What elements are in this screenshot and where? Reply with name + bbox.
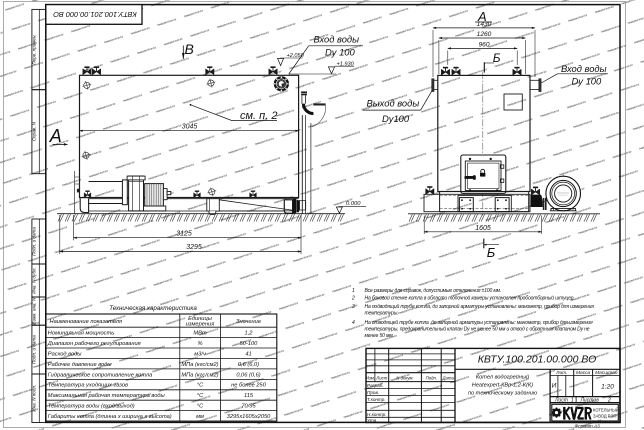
svg-text:На подводящий трубе котла, д: На подводящий трубе котла, до запорной а… [365, 303, 595, 310]
svg-text:Подп. и дата: Подп. и дата [32, 335, 37, 364]
svg-text:Подп. и дата: Подп. и дата [32, 227, 37, 256]
svg-text:50-100: 50-100 [240, 341, 259, 347]
svg-text:м3/ч: м3/ч [194, 351, 206, 357]
svg-text:+1.930: +1.930 [337, 61, 355, 67]
svg-text:Dy100: Dy100 [382, 113, 410, 124]
svg-text:Наименование показателя: Наименование показателя [50, 319, 123, 325]
svg-text:Значение: Значение [236, 319, 261, 325]
svg-text:Инв. N дубл.: Инв. N дубл. [32, 267, 37, 294]
svg-text:Взам. инв. N: Взам. инв. N [32, 297, 37, 324]
svg-text:1,2: 1,2 [245, 331, 254, 337]
svg-text:Перв. примен.: Перв. примен. [32, 34, 37, 65]
svg-text:ЗАВОД РЭП: ЗАВОД РЭП [593, 414, 616, 419]
svg-text:см. п. 2: см. п. 2 [240, 110, 277, 122]
svg-text:1: 1 [352, 288, 355, 294]
svg-text:Dy 100: Dy 100 [572, 76, 602, 87]
svg-text:температуры.: температуры. [365, 310, 399, 316]
svg-text:Б: Б [487, 245, 496, 260]
svg-text:Пров.: Пров. [367, 390, 379, 395]
svg-text:Рабочее давление воды: Рабочее давление воды [48, 362, 113, 368]
svg-text:3295х1605х2050: 3295х1605х2050 [227, 414, 271, 420]
svg-text:И: И [552, 383, 557, 390]
svg-text:Утв.: Утв. [367, 418, 377, 423]
svg-text:Масштаб: Масштаб [595, 370, 618, 376]
svg-text:0,06 (0,6): 0,06 (0,6) [236, 372, 260, 378]
svg-text:мм: мм [196, 414, 204, 420]
svg-text:Справ. N: Справ. N [32, 121, 37, 141]
svg-text:1430: 1430 [477, 21, 492, 28]
svg-text:Лист: Лист [375, 376, 387, 381]
svg-text:Изм.: Изм. [366, 376, 375, 381]
svg-text:по техническому заданию: по техническому заданию [468, 390, 538, 396]
svg-text:0,6 (6,0): 0,6 (6,0) [238, 362, 259, 368]
svg-text:КВТУ.100.201.00.000 ВО: КВТУ.100.201.00.000 ВО [53, 10, 137, 19]
svg-text:41: 41 [245, 351, 251, 357]
svg-text:4: 4 [352, 320, 355, 326]
svg-text:Лист: Лист [554, 398, 568, 404]
svg-text:960: 960 [478, 42, 489, 49]
svg-text:КОТЕЛЬНЫЙ: КОТЕЛЬНЫЙ [593, 407, 619, 412]
svg-text:Габариты котла (длинна х ширин: Габариты котла (длинна х ширина х высота… [48, 414, 172, 420]
svg-text:измерения: измерения [186, 322, 214, 328]
svg-text:не более 250: не более 250 [231, 383, 267, 389]
svg-text:температуры, предохранительный: температуры, предохранительный клапан Dy… [365, 325, 590, 332]
svg-text:Инв. N подл.: Инв. N подл. [32, 385, 37, 412]
svg-text:1605: 1605 [475, 225, 491, 232]
svg-text:Расход воды: Расход воды [48, 351, 82, 357]
svg-text:Номинальная мощность: Номинальная мощность [48, 331, 114, 337]
svg-text:КВТУ.100.201.00.000 ВО: КВТУ.100.201.00.000 ВО [478, 354, 597, 366]
svg-text:МПа (кгс/см2): МПа (кгс/см2) [181, 362, 218, 368]
svg-text:Лит.: Лит. [555, 370, 567, 376]
svg-text:1260: 1260 [477, 31, 492, 38]
svg-text:Температура уходящих газов: Температура уходящих газов [48, 383, 128, 389]
svg-text:1: 1 [571, 398, 574, 404]
svg-text:Дата: Дата [442, 376, 455, 381]
svg-text:3: 3 [352, 304, 355, 310]
svg-text:Максимальная рабочая температу: Максимальная рабочая температура воды [48, 393, 166, 399]
svg-text:°С: °С [197, 383, 204, 389]
svg-text:115: 115 [244, 393, 254, 399]
svg-text:Масса: Масса [576, 370, 591, 376]
svg-text:На отводящей трубе котла ,до з: На отводящей трубе котла ,до запорной ар… [365, 319, 594, 326]
svg-text:%: % [197, 341, 202, 347]
svg-text:3125: 3125 [176, 230, 192, 237]
svg-text:Н.контр.: Н.контр. [367, 412, 386, 417]
svg-text:70/95: 70/95 [241, 404, 256, 410]
svg-text:Диапазон рабочего регулировани: Диапазон рабочего регулирования [47, 341, 141, 347]
svg-text:Вход воды: Вход воды [561, 63, 607, 74]
svg-text:В: В [185, 41, 194, 57]
svg-text:Б: Б [493, 51, 501, 65]
svg-text:0.000: 0.000 [346, 201, 361, 207]
svg-text:Разраб.: Разраб. [367, 383, 384, 388]
svg-text:3295: 3295 [186, 244, 202, 251]
svg-text:Температура воды (вход/выход): Температура воды (вход/выход) [48, 404, 135, 410]
svg-text:Выход воды: Выход воды [367, 97, 420, 108]
svg-text:3045: 3045 [182, 124, 198, 131]
svg-text:Гидравлическое сопротивление к: Гидравлическое сопротивление котла [48, 372, 153, 378]
svg-text:менее 50 мм.: менее 50 мм. [365, 333, 394, 339]
svg-text:Формат А3: Формат А3 [575, 423, 601, 428]
svg-text:N докум.: N докум. [396, 376, 413, 381]
svg-text:Все размеры для справок, допус: Все размеры для справок, допустимые откл… [365, 288, 502, 294]
svg-text:Котел водогрейный: Котел водогрейный [476, 374, 529, 381]
svg-text:2: 2 [351, 295, 355, 301]
svg-text:Heatexpert-КВр-1,2-К(К): Heatexpert-КВр-1,2-К(К) [472, 383, 533, 389]
svg-text:°С: °С [197, 393, 204, 399]
svg-text:Вход воды: Вход воды [314, 34, 360, 45]
svg-text:МПа (кгс/см2): МПа (кгс/см2) [181, 372, 218, 378]
svg-text:МВт: МВт [193, 331, 207, 337]
svg-text:Dy 100: Dy 100 [325, 46, 355, 57]
svg-text:На боковой стенке котла в обла: На боковой стенке котла в области топочн… [365, 294, 574, 301]
svg-text:Т.контр.: Т.контр. [367, 397, 386, 402]
svg-text:1:20: 1:20 [601, 384, 614, 391]
svg-text:Листов: Листов [580, 398, 600, 404]
svg-text:Техническая характеристика: Техническая характеристика [109, 305, 197, 312]
svg-text:А: А [49, 126, 62, 146]
svg-text:°С: °С [197, 404, 204, 410]
svg-text:Подп.: Подп. [426, 376, 437, 381]
svg-text:2: 2 [607, 398, 611, 404]
